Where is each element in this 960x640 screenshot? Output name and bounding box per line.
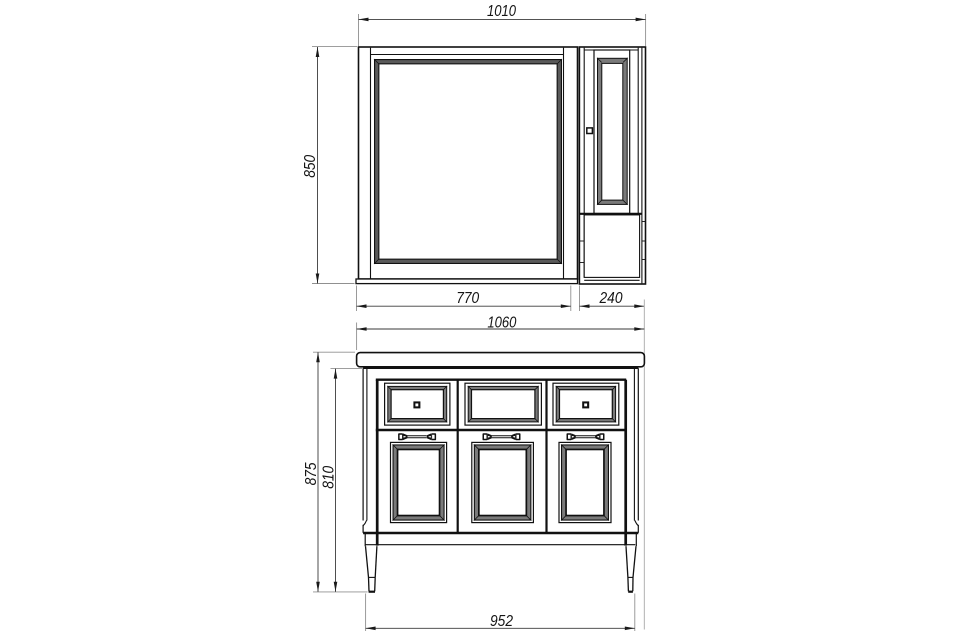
svg-text:1060: 1060 <box>487 314 516 331</box>
svg-text:875: 875 <box>303 462 320 485</box>
svg-text:810: 810 <box>320 465 337 488</box>
svg-text:770: 770 <box>456 290 479 307</box>
svg-text:952: 952 <box>490 613 513 630</box>
svg-text:850: 850 <box>302 154 319 177</box>
svg-text:240: 240 <box>599 290 623 307</box>
svg-text:1010: 1010 <box>487 3 516 20</box>
